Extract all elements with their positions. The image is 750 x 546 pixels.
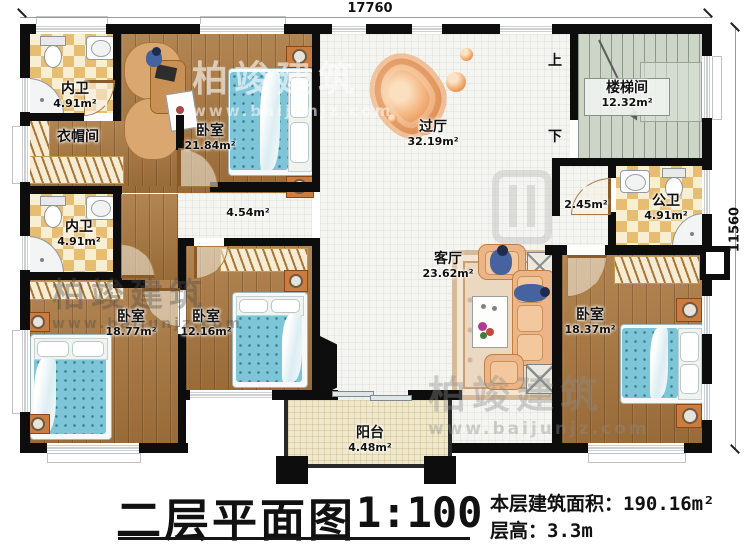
window (500, 24, 552, 34)
floor-area-row: 本层建筑面积：190.16m² (490, 489, 715, 516)
bed-pillow (290, 77, 309, 118)
shower-drain (40, 258, 44, 262)
window (47, 443, 139, 453)
wall (178, 238, 194, 246)
room-label-bedroom-s: 卧室12.16m² (166, 310, 246, 338)
nightstand-lamp (289, 274, 303, 288)
room-label-stairwell: 楼梯间12.32m² (584, 78, 670, 116)
bed-sheet (650, 328, 668, 398)
floor-height-value: 3.3m (547, 520, 593, 542)
stair-down-label: 下 (548, 126, 562, 146)
tv-icon (320, 336, 337, 396)
nightstand-lamp (292, 49, 307, 64)
bed-pillow (72, 341, 104, 357)
bedroom-s-wardrobe (220, 248, 308, 272)
room-label-balcony: 阳台4.48m² (330, 426, 410, 454)
dimension-top-value: 17760 (330, 1, 410, 16)
wall (608, 166, 616, 178)
wall (552, 158, 710, 166)
art-ball (446, 72, 466, 92)
wall (210, 182, 320, 192)
floor-height-row: 层高：3.3m (490, 516, 593, 543)
bed-pillow (37, 341, 69, 357)
wall (20, 113, 84, 121)
sliding-door (370, 395, 412, 401)
window (36, 24, 106, 34)
sliding-door (332, 391, 374, 397)
nightstand-lamp (682, 408, 698, 424)
wall (312, 24, 320, 192)
wall (20, 186, 122, 194)
room-label-bath-mid: 内卫4.91m² (44, 220, 114, 248)
balcony-pillar (424, 456, 456, 484)
room-label-bedroom-sw: 卧室18.77m² (91, 310, 171, 338)
window (20, 126, 30, 182)
window (20, 236, 30, 270)
sofa-seat (484, 354, 524, 390)
dimension-line-top (20, 17, 712, 18)
art-ball (460, 48, 473, 61)
room-label-cloakroom: 衣帽间 (38, 130, 118, 146)
window (702, 170, 712, 214)
coffee-table-cup (481, 304, 486, 309)
window-sill (588, 453, 686, 463)
bed-sheet (260, 72, 280, 170)
window-sill (47, 453, 141, 463)
bed-pillow (680, 364, 699, 394)
art-card-flower (176, 106, 184, 114)
flue-bump-inner (706, 252, 724, 274)
sink-icon (86, 36, 115, 60)
sink-icon (620, 170, 650, 193)
room-label-living: 客厅23.62m² (408, 252, 488, 280)
nightstand-lamp (31, 417, 45, 431)
side-table (526, 364, 554, 394)
wall (113, 186, 121, 280)
bedroom-se-wardrobe (614, 256, 700, 284)
wall (178, 246, 186, 280)
wall (20, 272, 122, 280)
watermark-logo (492, 170, 552, 244)
bed-pillow (271, 299, 300, 313)
window (702, 296, 712, 334)
stair-up-label: 上 (548, 50, 562, 70)
dimension-right-value: 11560 (728, 207, 743, 253)
window (702, 56, 712, 118)
window (190, 390, 272, 400)
wall (605, 245, 712, 255)
wall (224, 238, 320, 246)
coffee-table-flowers (480, 332, 487, 339)
toilet-bowl (44, 45, 62, 68)
wall (570, 24, 578, 120)
window (588, 443, 684, 453)
nightstand-lamp (682, 302, 698, 318)
floor-area-value: 190.16m² (623, 493, 715, 515)
plan-scale: 1:100 (356, 488, 482, 537)
room-label-bedroom-top: 卧室21.84m² (160, 124, 260, 152)
bedroom-sw-wardrobe (26, 281, 124, 300)
window (332, 24, 366, 34)
wall (608, 212, 616, 245)
balcony-pillar (276, 456, 308, 484)
window (20, 78, 30, 112)
window (200, 24, 284, 34)
room-label-hall: 过厅32.19m² (393, 120, 473, 148)
room-label-corridor: 4.54m² (208, 207, 288, 219)
person-head (152, 47, 161, 56)
bed-pillow (680, 332, 699, 362)
sink-icon (86, 196, 115, 220)
window (20, 330, 30, 412)
title-underline (118, 537, 470, 540)
person-head (497, 245, 508, 256)
bed-sheet (282, 314, 302, 382)
floor-plan-canvas: 内卫4.91m² 卧室21.84m² 衣帽间 过厅32.19m² 内卫4.91m… (0, 0, 750, 546)
window (702, 384, 712, 420)
coffee-table-cup (492, 306, 497, 311)
wall (113, 24, 121, 121)
cloakroom-wardrobe-bottom (26, 156, 124, 184)
window (412, 24, 442, 34)
window-sill (712, 56, 722, 120)
person-head (540, 287, 550, 297)
room-label-bedroom-se: 卧室18.37m² (550, 308, 630, 336)
floor-height-label: 层高： (490, 520, 547, 542)
wall (178, 334, 186, 453)
room-label-bath-top: 内卫4.91m² (40, 82, 110, 110)
coffee-table-flowers (486, 328, 494, 336)
coffee-table (472, 296, 508, 348)
nightstand-lamp (31, 315, 45, 329)
floor-area-label: 本层建筑面积： (490, 493, 623, 515)
wall (552, 245, 562, 453)
room-label-corridor-east: 2.45m² (548, 199, 624, 211)
room-label-bath-public: 公卫4.91m² (630, 194, 702, 222)
wall (312, 238, 320, 400)
bed-pillow (290, 122, 309, 163)
shower-drain (690, 232, 694, 236)
wall (20, 24, 712, 34)
wall (408, 390, 462, 400)
wall (113, 280, 145, 288)
